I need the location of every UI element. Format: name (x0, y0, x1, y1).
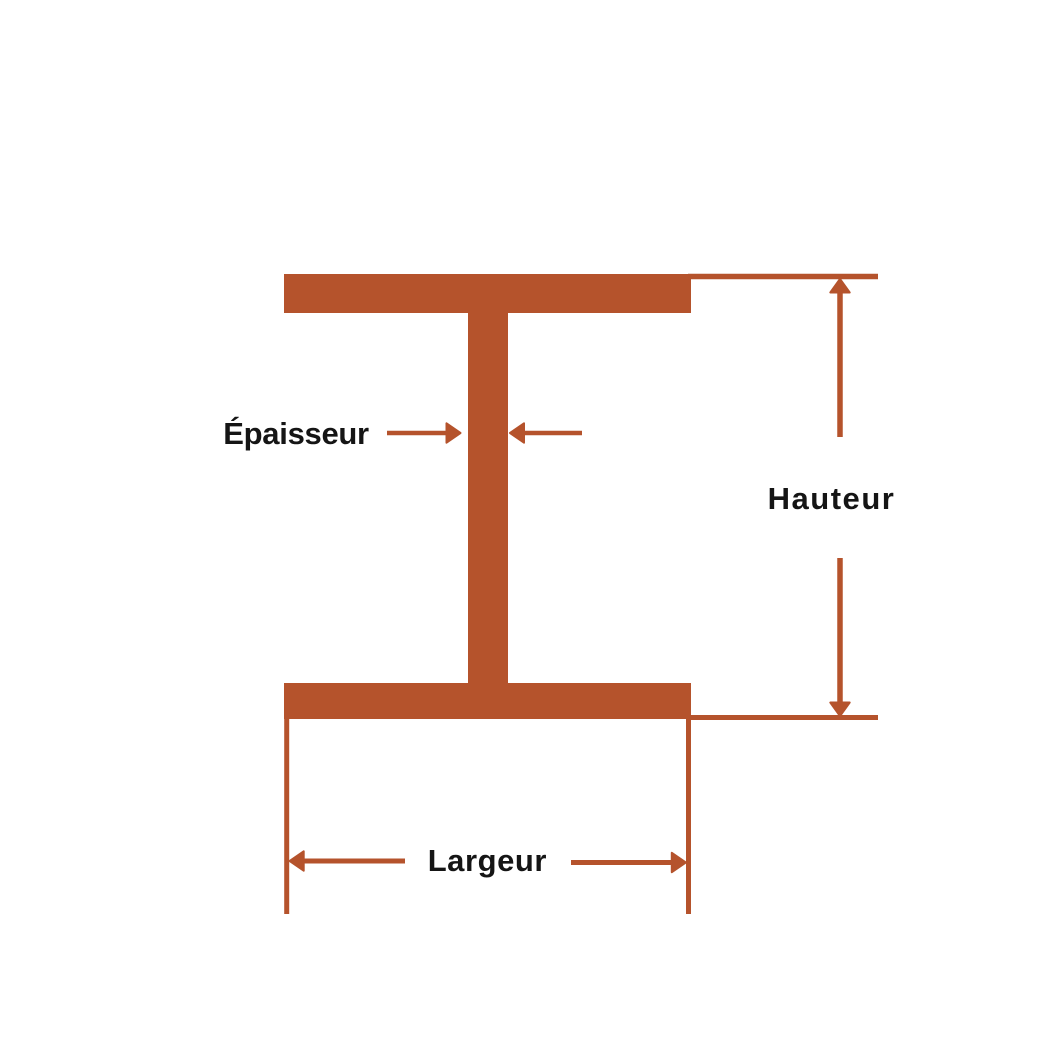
svg-text:Hauteur: Hauteur (768, 481, 896, 516)
svg-text:Largeur: Largeur (428, 843, 547, 878)
svg-text:Épaisseur: Épaisseur (223, 416, 369, 451)
